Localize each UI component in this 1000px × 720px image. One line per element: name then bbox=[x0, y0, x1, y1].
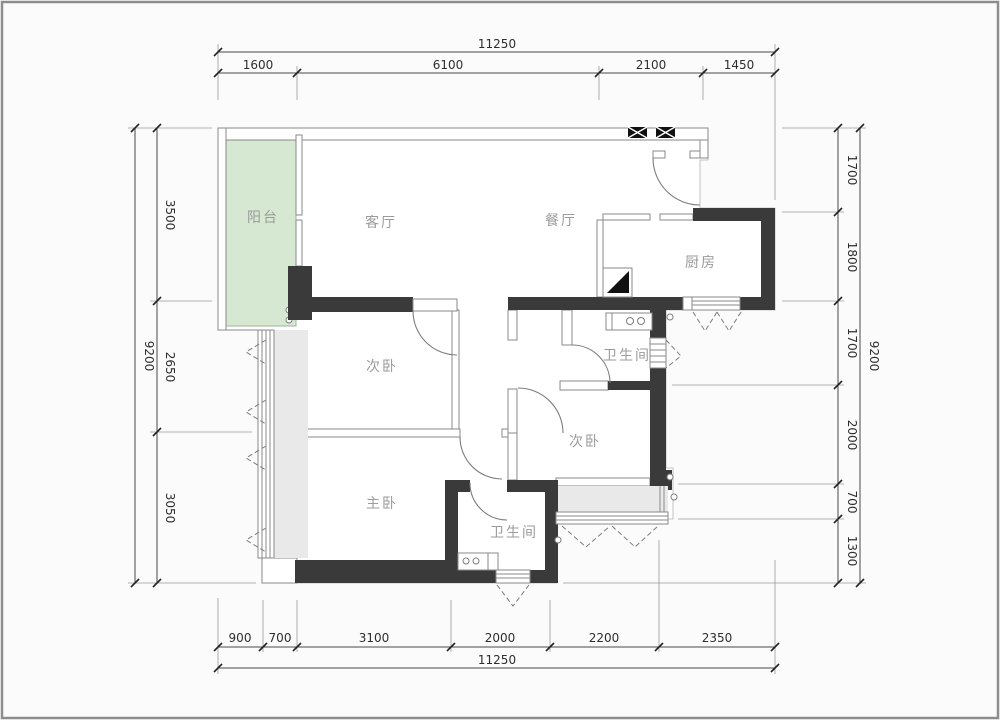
window-symbol bbox=[556, 512, 668, 524]
wall-segment bbox=[288, 266, 312, 320]
room-label-bedroom2: 次卧 bbox=[366, 359, 398, 375]
flue-icon bbox=[603, 268, 632, 297]
wall-segment bbox=[296, 135, 302, 215]
room-balcony-area bbox=[222, 133, 296, 330]
wall-segment bbox=[508, 310, 517, 340]
bay-sill bbox=[274, 330, 308, 558]
wall-segment bbox=[310, 297, 413, 312]
window-symbol bbox=[692, 297, 740, 310]
wall-segment bbox=[218, 128, 226, 330]
floor-plan-drawing: 11250 1600 6100 2100 1450 900 700 3100 2… bbox=[0, 0, 1000, 720]
wall-segment bbox=[296, 220, 302, 266]
louver-symbol bbox=[650, 338, 666, 368]
wall-segment bbox=[502, 429, 508, 437]
dim-top-seg-3: 2100 bbox=[636, 58, 667, 72]
dim-bottom-seg-1: 900 bbox=[229, 631, 252, 645]
wall-segment bbox=[556, 478, 650, 486]
door-leaf bbox=[508, 389, 517, 433]
wall-segment bbox=[562, 310, 572, 345]
wall-segment bbox=[597, 220, 603, 297]
wall-segment bbox=[508, 297, 683, 310]
room-label-balcony: 阳台 bbox=[247, 210, 279, 226]
wall-segment bbox=[761, 208, 775, 310]
room-label-living: 客厅 bbox=[365, 214, 397, 231]
dim-bottom-seg-3: 3100 bbox=[359, 631, 390, 645]
wall-fitting-icon bbox=[671, 494, 677, 500]
dim-top-seg-2: 6100 bbox=[433, 58, 464, 72]
wall-segment bbox=[560, 381, 608, 390]
wall-segment bbox=[508, 433, 517, 480]
floor-plan-page: 11250 1600 6100 2100 1450 900 700 3100 2… bbox=[0, 0, 1000, 720]
dim-bottom-seg-5: 2200 bbox=[589, 631, 620, 645]
dim-bottom-seg-2: 700 bbox=[269, 631, 292, 645]
room-label-bathroom2: 卫生间 bbox=[490, 525, 538, 541]
wall-segment bbox=[740, 297, 775, 310]
dim-top-seg-1: 1600 bbox=[243, 58, 274, 72]
room-label-bedroom3: 次卧 bbox=[569, 434, 601, 450]
wall-segment bbox=[608, 381, 650, 390]
wall-fitting-icon bbox=[555, 537, 561, 543]
room-label-dining: 餐厅 bbox=[545, 213, 577, 229]
wall-segment bbox=[445, 480, 470, 492]
dim-right-seg-2: 1800 bbox=[845, 242, 859, 273]
dim-right-seg-6: 1300 bbox=[845, 536, 859, 567]
dim-bottom-seg-4: 2000 bbox=[485, 631, 516, 645]
wall-segment bbox=[690, 151, 700, 158]
washbasin-icon bbox=[458, 553, 498, 570]
dim-bottom-seg-6: 2350 bbox=[702, 631, 733, 645]
room-label-master: 主卧 bbox=[366, 496, 398, 512]
wall-segment bbox=[452, 310, 459, 432]
duct-bowtie-icon bbox=[656, 127, 675, 138]
dim-left-seg-1: 3500 bbox=[163, 200, 177, 231]
balcony-floor bbox=[226, 133, 296, 326]
wall-segment bbox=[700, 140, 708, 158]
wall-fitting-icon bbox=[667, 474, 673, 480]
dim-bottom-overall: 11250 bbox=[478, 653, 516, 667]
dim-top-overall: 11250 bbox=[478, 37, 516, 51]
wall-fitting-icon bbox=[667, 314, 673, 320]
wall-segment bbox=[262, 558, 297, 583]
dim-left-seg-3: 3050 bbox=[163, 493, 177, 524]
dim-right-seg-5: 700 bbox=[845, 491, 859, 514]
dim-top-seg-4: 1450 bbox=[724, 58, 755, 72]
wall-segment bbox=[545, 480, 558, 583]
wall-segment bbox=[295, 560, 458, 583]
dim-left-overall: 9200 bbox=[142, 341, 156, 372]
dim-right-seg-4: 2000 bbox=[845, 420, 859, 451]
duct-bowtie-icon bbox=[628, 127, 647, 138]
room-label-kitchen: 厨房 bbox=[685, 255, 717, 271]
window-symbol bbox=[496, 570, 530, 583]
washbasin-icon bbox=[606, 313, 652, 330]
wall-break bbox=[683, 297, 692, 310]
dim-right-seg-1: 1700 bbox=[845, 155, 859, 186]
bay-sill bbox=[558, 486, 668, 514]
room-label-bathroom1: 卫生间 bbox=[603, 348, 651, 364]
wall-segment bbox=[603, 214, 650, 220]
wall-segment bbox=[660, 214, 693, 220]
dim-left-seg-2: 2650 bbox=[163, 352, 177, 383]
dim-right-seg-3: 1700 bbox=[845, 328, 859, 359]
dim-right-overall: 9200 bbox=[867, 341, 881, 372]
wall-segment bbox=[653, 151, 665, 158]
wall-segment bbox=[530, 570, 558, 583]
door-leaf bbox=[413, 299, 457, 311]
